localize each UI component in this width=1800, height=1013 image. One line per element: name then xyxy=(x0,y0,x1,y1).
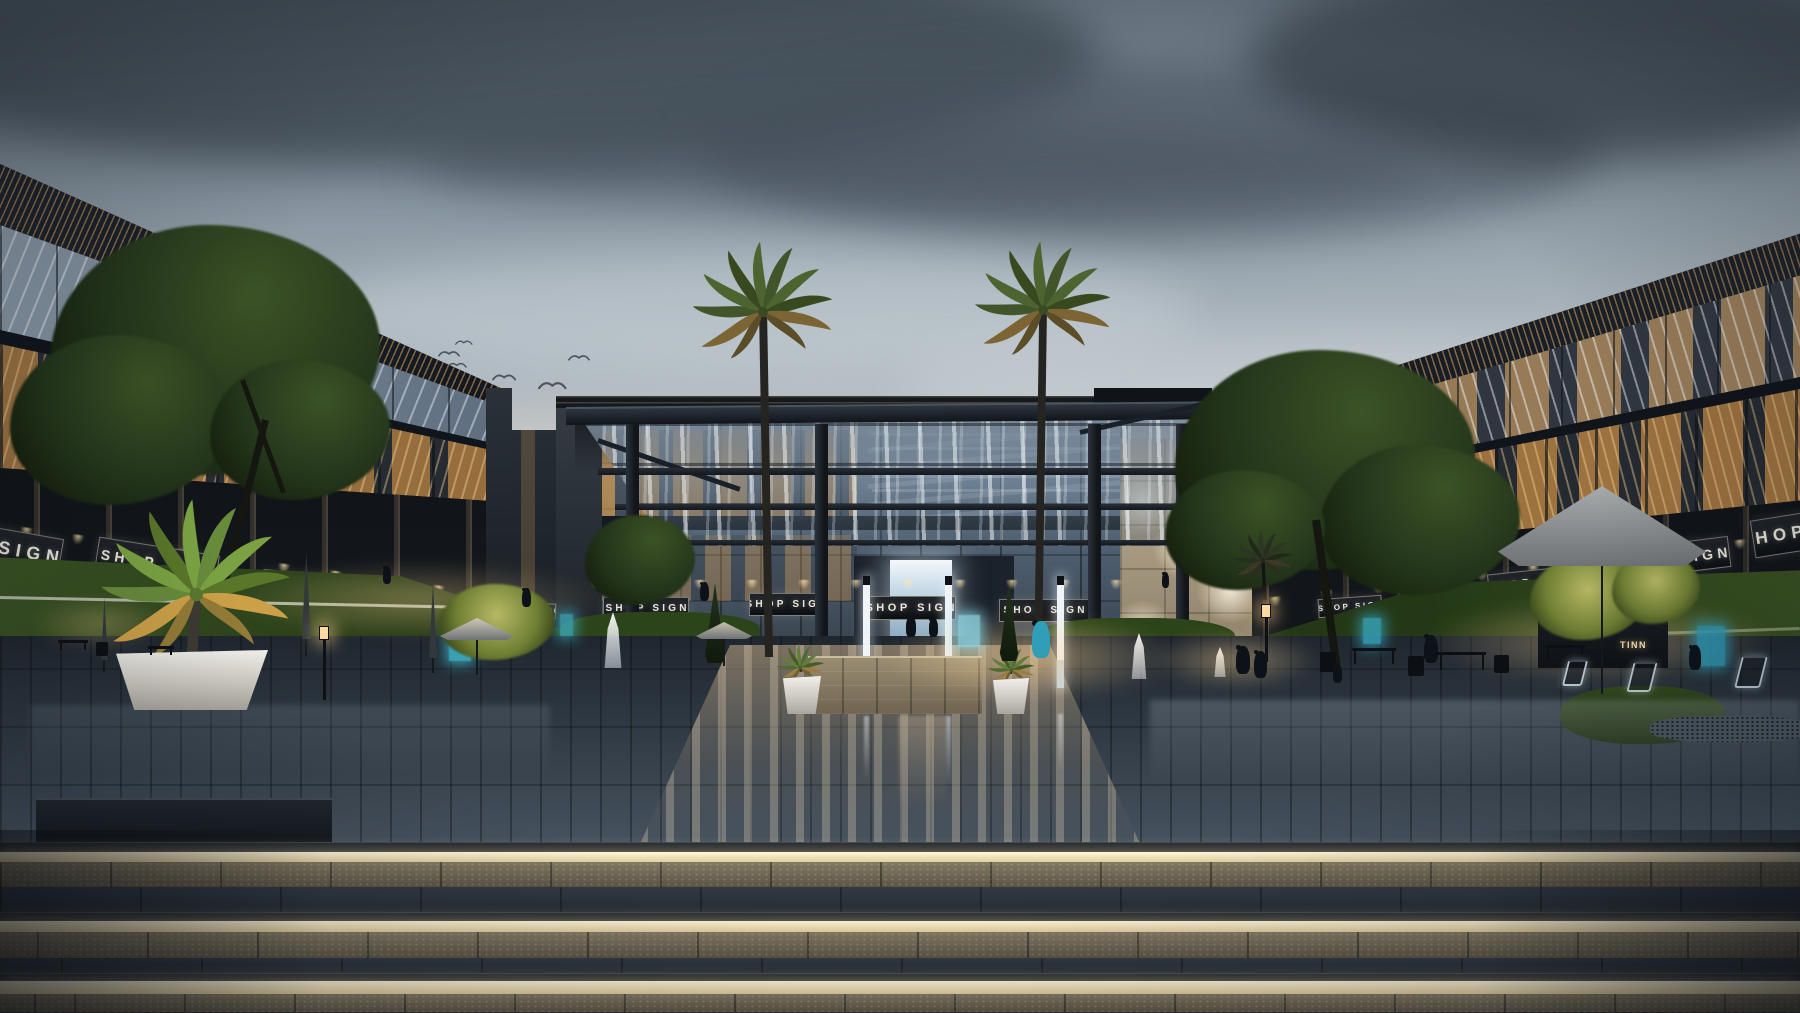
table xyxy=(1352,648,1396,664)
reflection-streak xyxy=(898,716,946,808)
white-planter xyxy=(783,676,821,714)
person xyxy=(1424,634,1438,674)
umbrella-closed-canvas xyxy=(296,553,317,639)
umbrella-canopy xyxy=(440,618,514,640)
light-glow xyxy=(1150,630,1320,690)
umbrella-closed xyxy=(296,553,317,656)
umbrella-canopy xyxy=(1498,486,1706,566)
table xyxy=(1545,645,1585,659)
person-body xyxy=(1254,651,1267,678)
person xyxy=(1254,650,1267,688)
umbrella-pole xyxy=(476,640,478,675)
chair xyxy=(1408,656,1424,676)
person-body xyxy=(1333,664,1342,683)
bird-icon xyxy=(538,378,567,391)
reflection-streak xyxy=(946,716,951,788)
chair xyxy=(96,642,108,656)
lamp-pole xyxy=(323,639,326,700)
bird-icon xyxy=(568,352,590,362)
person xyxy=(1032,620,1050,672)
person-body xyxy=(1424,635,1438,664)
person-body xyxy=(522,588,531,607)
lamp-head xyxy=(1261,604,1271,618)
person-body xyxy=(1689,645,1701,669)
person-body xyxy=(929,618,938,637)
umbrella-pole xyxy=(1601,566,1603,694)
umbrella-closed xyxy=(424,583,442,673)
plaza-dusk-rendering: SHOP SIGNSHOP SIGNSHOP SIGNSHOP SIGNSHOP… xyxy=(0,0,1800,1013)
person xyxy=(1236,645,1250,685)
cloud xyxy=(420,120,1420,210)
umbrella-pole xyxy=(305,639,307,656)
table xyxy=(58,640,88,650)
lamp-head xyxy=(319,626,329,640)
palm-tree xyxy=(951,242,1135,653)
person xyxy=(1689,645,1701,679)
person-body xyxy=(1032,621,1050,658)
white-planter xyxy=(993,678,1029,714)
steps-edge-shade xyxy=(0,830,1800,1013)
umbrella-canopy xyxy=(696,622,752,639)
reflection-streak xyxy=(864,716,869,780)
umbrella-open xyxy=(440,618,514,675)
accent-window xyxy=(1363,618,1381,644)
paving-sheen-right xyxy=(1150,700,1800,785)
white-planter xyxy=(116,650,268,710)
person xyxy=(1162,572,1169,594)
table xyxy=(148,646,174,655)
person xyxy=(929,618,938,644)
reflection-streak xyxy=(1058,714,1063,772)
person xyxy=(1333,664,1342,690)
table xyxy=(1438,652,1486,670)
person-body xyxy=(906,616,916,636)
umbrella-open xyxy=(1498,486,1706,694)
person-body xyxy=(1162,572,1169,588)
person xyxy=(700,582,709,608)
person-body xyxy=(700,582,709,601)
chair xyxy=(1494,655,1509,673)
umbrella-pole xyxy=(103,660,105,672)
umbrella-pole xyxy=(723,639,725,666)
umbrella-closed xyxy=(97,598,112,672)
paving-sheen-left xyxy=(30,705,550,775)
person xyxy=(906,616,916,644)
lamp-post xyxy=(318,626,330,700)
person xyxy=(522,588,531,614)
palm-tree xyxy=(668,242,858,671)
palm-tree xyxy=(768,644,833,677)
accent-window xyxy=(560,614,573,636)
person-body xyxy=(383,566,391,583)
gravel-strip xyxy=(1650,716,1800,742)
umbrella-closed-canvas xyxy=(424,583,442,658)
person xyxy=(383,566,391,590)
umbrella-pole xyxy=(432,658,434,673)
umbrella-open xyxy=(696,622,752,666)
person-body xyxy=(1236,646,1250,675)
palm-tree xyxy=(1223,531,1303,606)
